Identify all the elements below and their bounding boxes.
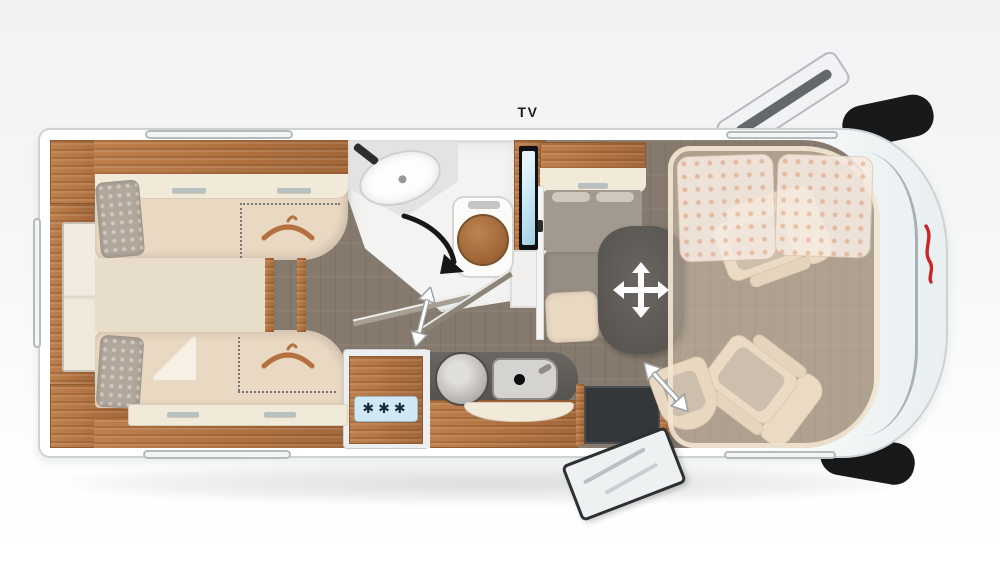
sink-faucet-icon bbox=[537, 363, 552, 375]
top-bed-pillow bbox=[95, 179, 145, 259]
tv-screen bbox=[522, 151, 535, 245]
headrest-2 bbox=[596, 192, 634, 202]
door-glass-streak bbox=[583, 447, 646, 484]
toilet-hinge bbox=[468, 201, 500, 209]
basin-drain bbox=[397, 174, 407, 184]
hanger-icon bbox=[260, 212, 316, 242]
window-slot-top-front bbox=[726, 131, 838, 139]
bottom-bed-extension-dotted-line-2 bbox=[238, 391, 336, 393]
bottom-bed-extension-dotted-line bbox=[238, 337, 240, 391]
dropdown-bed-pillow-2 bbox=[774, 153, 874, 258]
shower-swivel-arrow-icon bbox=[396, 212, 472, 278]
bottom-bed-bench-front bbox=[128, 404, 348, 426]
table-move-cross-arrow-icon bbox=[613, 262, 669, 318]
mirror-glass bbox=[734, 68, 833, 137]
bedroom-step-2 bbox=[297, 258, 306, 332]
window-slot-top-rear bbox=[145, 130, 293, 139]
sink-drain bbox=[514, 374, 525, 385]
brand-logo bbox=[920, 222, 938, 286]
floorplan-canvas: ✱✱✱ bbox=[0, 0, 1000, 563]
fridge: ✱✱✱ bbox=[344, 350, 428, 448]
stove-cover-dome bbox=[435, 352, 489, 406]
window-slot-rear-wall bbox=[33, 218, 41, 348]
top-bed-extension-dotted-line bbox=[240, 203, 242, 258]
hanger-icon bbox=[260, 340, 316, 370]
top-bed-extension-dotted-line-2 bbox=[240, 203, 340, 205]
bedroom-step bbox=[265, 258, 274, 332]
bedroom-podest bbox=[95, 258, 267, 332]
dropdown-bed-overlay bbox=[668, 146, 880, 448]
kitchen-sink bbox=[492, 358, 558, 400]
tv-label: TV bbox=[508, 104, 548, 124]
snowflake-icons: ✱✱✱ bbox=[355, 397, 417, 421]
kitchen-divider-wall bbox=[424, 350, 430, 448]
ground-shadow bbox=[70, 462, 900, 504]
dropdown-bed-pillow bbox=[676, 153, 777, 262]
bottom-bed-pillow bbox=[96, 335, 145, 410]
freezer-panel: ✱✱✱ bbox=[354, 396, 418, 422]
entry-trim bbox=[576, 384, 584, 446]
dinette-cushion bbox=[545, 291, 600, 344]
headrest bbox=[552, 192, 590, 202]
window-slot-bottom-rear bbox=[143, 450, 291, 459]
window-slot-bottom-front bbox=[724, 451, 836, 459]
